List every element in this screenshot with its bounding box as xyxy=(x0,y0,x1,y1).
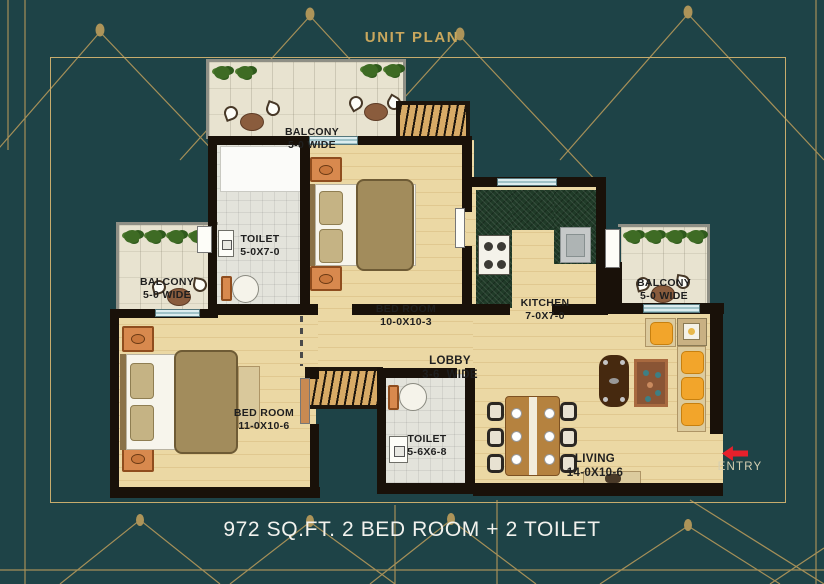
nightstand xyxy=(310,266,342,291)
pillow xyxy=(319,191,343,225)
sofa-cushion xyxy=(681,351,704,374)
nightstand xyxy=(122,326,154,352)
plant-icon xyxy=(385,64,401,77)
label-kitchen: KITCHEN7-0X7-0 xyxy=(493,271,597,324)
plan-caption: 972 SQ.FT. 2 BED ROOM + 2 TOILET xyxy=(0,518,824,542)
plant-icon xyxy=(124,230,140,243)
window xyxy=(155,309,200,317)
dining-chair xyxy=(487,428,504,447)
floor-plan: BALCONY5-0 WIDE TOILET5-0X7-0 BED ROOM10… xyxy=(0,0,824,584)
plate-icon xyxy=(511,408,522,419)
label-balcony-right: BALCONY5-0 WIDE xyxy=(622,251,706,304)
pillow xyxy=(130,405,154,441)
lobby-dashed-line xyxy=(300,316,303,366)
bed1-duvet xyxy=(356,179,414,271)
plant-icon xyxy=(214,66,230,79)
window xyxy=(497,178,557,186)
label-living: LIVING14-0X10-6 xyxy=(538,423,652,481)
plant-icon xyxy=(237,66,253,79)
label-toilet-1: TOILET5-0X7-0 xyxy=(212,207,308,260)
dining-chair xyxy=(487,454,504,473)
shower-area xyxy=(220,146,302,192)
plate-icon xyxy=(511,431,522,442)
plant-icon xyxy=(168,230,184,243)
plate-icon xyxy=(544,408,555,419)
pillow xyxy=(130,363,154,399)
label-lobby: LOBBY3-6 WIDE xyxy=(398,325,502,383)
dining-chair xyxy=(487,402,504,421)
nightstand xyxy=(310,157,342,182)
stove-icon xyxy=(478,235,510,275)
plant-icon xyxy=(688,230,704,243)
label-balcony-left: BALCONY5-0 WIDE xyxy=(119,250,215,303)
pillow xyxy=(319,229,343,263)
door xyxy=(605,229,620,268)
rug xyxy=(634,359,668,407)
door xyxy=(455,208,465,248)
plant-icon xyxy=(146,230,162,243)
label-balcony-top: BALCONY5-0 WIDE xyxy=(256,100,368,153)
kitchen-sink-icon xyxy=(560,227,591,263)
entry-arrow-icon xyxy=(722,446,748,461)
toilet1-wc-icon xyxy=(232,275,259,303)
sofa-cushion xyxy=(681,403,704,426)
plant-icon xyxy=(667,230,683,243)
label-bedroom-1: BED ROOM10-0X10-3 xyxy=(340,277,472,330)
plant-icon xyxy=(625,230,641,243)
plant-icon xyxy=(362,64,378,77)
door xyxy=(197,226,212,253)
plant-icon xyxy=(646,230,662,243)
entry-label: ENTRY xyxy=(712,461,768,473)
center-table xyxy=(599,355,629,407)
window xyxy=(643,304,700,313)
unit-plan-page: UNIT PLAN xyxy=(0,0,824,584)
sofa-cushion xyxy=(681,377,704,400)
dining-chair xyxy=(560,402,577,421)
toilet1-wc-tank xyxy=(221,276,232,301)
label-bedroom-2: BED ROOM11-0X10-6 xyxy=(202,381,326,434)
corner-table xyxy=(677,318,707,346)
label-toilet-2: TOILET5-6X6-8 xyxy=(387,407,467,460)
plate-icon xyxy=(511,454,522,465)
sofa-cushion xyxy=(650,322,673,345)
